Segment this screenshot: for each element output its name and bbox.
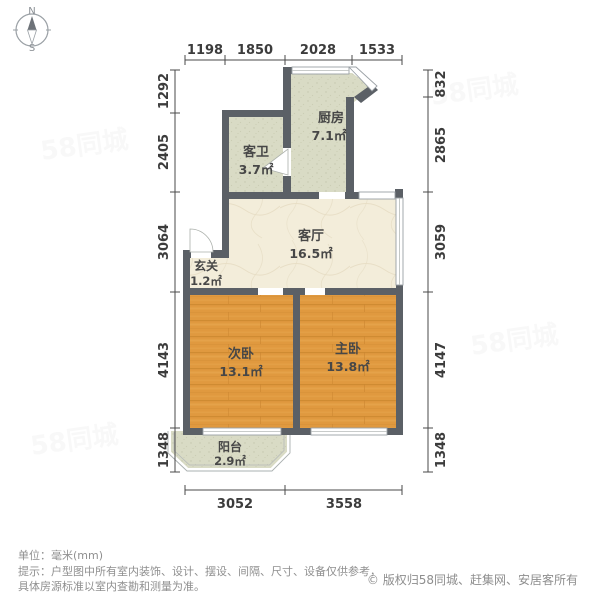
room-label-living: 客厅	[298, 228, 324, 244]
compass-south-label: S	[29, 43, 35, 54]
floor-plan-svg: N S	[0, 0, 600, 545]
dim-right-2: 3059	[434, 224, 449, 260]
dim-right-4: 1348	[434, 432, 449, 468]
room-label-bedroom1: 主卧	[335, 341, 361, 357]
dim-left-0: 1292	[157, 73, 172, 109]
dim-top-2: 2028	[300, 43, 336, 58]
room-area-kitchen: 7.1㎡	[312, 128, 347, 143]
dim-bottom-1: 3558	[326, 497, 362, 512]
room-area-bedroom2: 13.1㎡	[219, 364, 263, 379]
unit-note: 单位：毫米(mm)	[18, 548, 582, 564]
copyright-note: © 版权归58同城、赶集网、安居客所有	[367, 571, 578, 588]
dim-top-0: 1198	[187, 43, 223, 58]
dim-top-1: 1850	[237, 43, 273, 58]
compass: N S	[13, 6, 51, 54]
dim-left-2: 3064	[157, 224, 172, 260]
dim-top-3: 1533	[359, 43, 395, 58]
compass-needle-south	[28, 30, 37, 44]
room-area-balcony: 2.9㎡	[214, 454, 246, 468]
living-top-window	[359, 192, 395, 199]
dim-right-0: 832	[434, 70, 449, 97]
room-area-living: 16.5㎡	[289, 246, 333, 261]
dim-bottom-0: 3052	[217, 497, 253, 512]
entry-door	[190, 229, 213, 252]
dim-left-3: 4143	[157, 342, 172, 378]
room-label-bath: 客卫	[243, 144, 269, 160]
room-area-bath: 3.7㎡	[239, 162, 274, 177]
room-area-entry: 1.2㎡	[190, 274, 222, 288]
room-label-entry: 玄关	[194, 258, 218, 273]
dim-left-1: 2405	[157, 134, 172, 170]
compass-north-label: N	[28, 6, 35, 17]
dim-left-4: 1348	[157, 432, 172, 468]
room-label-balcony: 阳台	[218, 439, 242, 454]
room-label-bedroom2: 次卧	[228, 346, 254, 362]
room-area-bedroom1: 13.8㎡	[326, 359, 370, 374]
compass-needle-north	[28, 16, 37, 30]
room-label-kitchen: 厨房	[318, 110, 344, 126]
dim-right-1: 2865	[434, 127, 449, 163]
dim-right-3: 4147	[434, 342, 449, 378]
